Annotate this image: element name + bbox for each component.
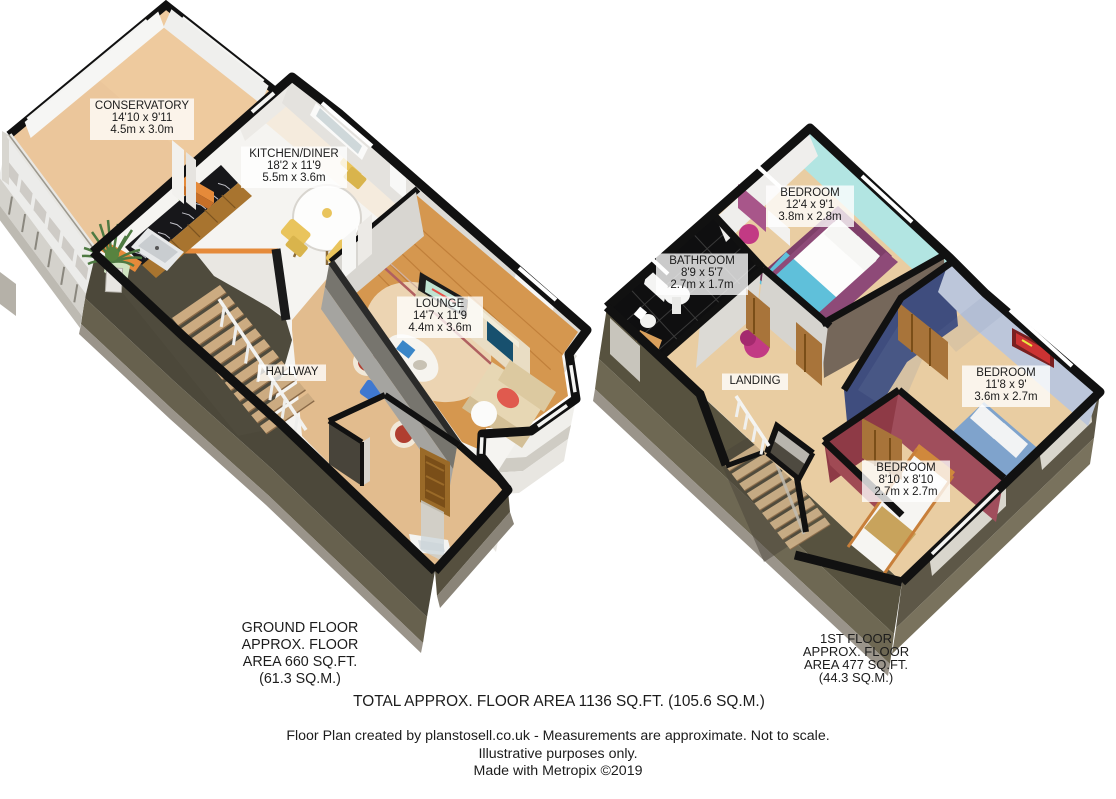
svg-text:2.7m x 2.7m: 2.7m x 2.7m — [874, 486, 937, 498]
svg-text:(44.3 SQ.M.): (44.3 SQ.M.) — [819, 670, 893, 685]
svg-text:Illustrative purposes only.: Illustrative purposes only. — [478, 746, 637, 762]
svg-text:AREA 660 SQ.FT.: AREA 660 SQ.FT. — [243, 654, 357, 670]
svg-text:3.6m x 2.7m: 3.6m x 2.7m — [974, 391, 1037, 403]
svg-text:Floor Plan created by planstos: Floor Plan created by planstosell.co.uk … — [286, 728, 829, 744]
svg-text:KITCHEN/DINER: KITCHEN/DINER — [249, 148, 338, 160]
svg-text:14'10 x 9'11: 14'10 x 9'11 — [112, 112, 172, 124]
svg-text:BEDROOM: BEDROOM — [780, 187, 839, 199]
svg-text:CONSERVATORY: CONSERVATORY — [95, 100, 189, 112]
svg-text:5.5m x 3.6m: 5.5m x 3.6m — [262, 172, 325, 184]
svg-text:TOTAL APPROX. FLOOR AREA 1136: TOTAL APPROX. FLOOR AREA 1136 SQ.FT. (10… — [353, 693, 765, 710]
svg-text:BEDROOM: BEDROOM — [876, 462, 935, 474]
svg-text:LANDING: LANDING — [729, 375, 780, 387]
svg-text:8'9 x 5'7: 8'9 x 5'7 — [681, 267, 723, 279]
svg-text:18'2 x 11'9: 18'2 x 11'9 — [267, 160, 321, 172]
svg-text:4.4m x 3.6m: 4.4m x 3.6m — [408, 322, 471, 334]
svg-text:8'10 x 8'10: 8'10 x 8'10 — [879, 474, 934, 486]
svg-text:2.7m x 1.7m: 2.7m x 1.7m — [670, 279, 733, 291]
svg-text:GROUND FLOOR: GROUND FLOOR — [242, 620, 359, 636]
svg-text:12'4 x 9'1: 12'4 x 9'1 — [786, 199, 835, 211]
svg-text:(61.3 SQ.M.): (61.3 SQ.M.) — [259, 671, 341, 687]
svg-text:14'7 x 11'9: 14'7 x 11'9 — [413, 310, 467, 322]
svg-text:Made with Metropix ©2019: Made with Metropix ©2019 — [474, 763, 643, 779]
svg-text:BEDROOM: BEDROOM — [976, 367, 1035, 379]
svg-text:HALLWAY: HALLWAY — [266, 366, 319, 378]
svg-text:3.8m x 2.8m: 3.8m x 2.8m — [778, 211, 841, 223]
svg-text:BATHROOM: BATHROOM — [669, 255, 735, 267]
svg-text:LOUNGE: LOUNGE — [416, 298, 465, 310]
svg-text:APPROX. FLOOR: APPROX. FLOOR — [242, 637, 359, 653]
svg-text:11'8 x 9': 11'8 x 9' — [985, 379, 1026, 391]
svg-text:4.5m x 3.0m: 4.5m x 3.0m — [110, 124, 173, 136]
